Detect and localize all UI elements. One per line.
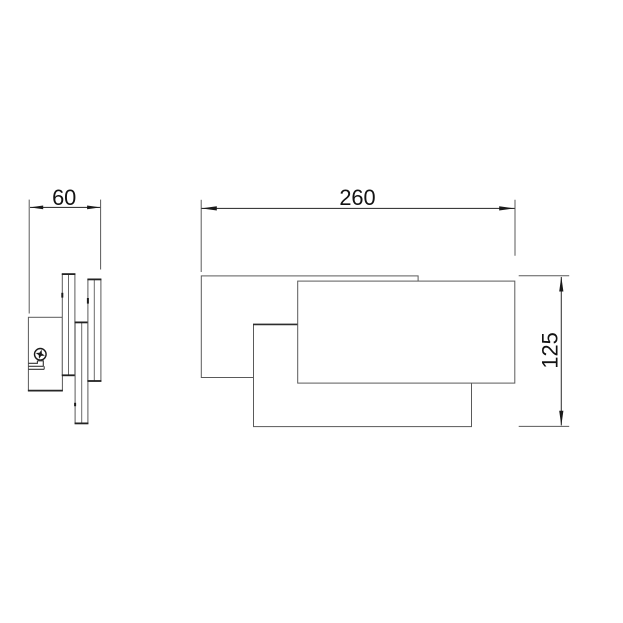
svg-text:125: 125 [538,332,563,368]
svg-text:260: 260 [339,185,375,210]
svg-text:60: 60 [52,185,76,210]
